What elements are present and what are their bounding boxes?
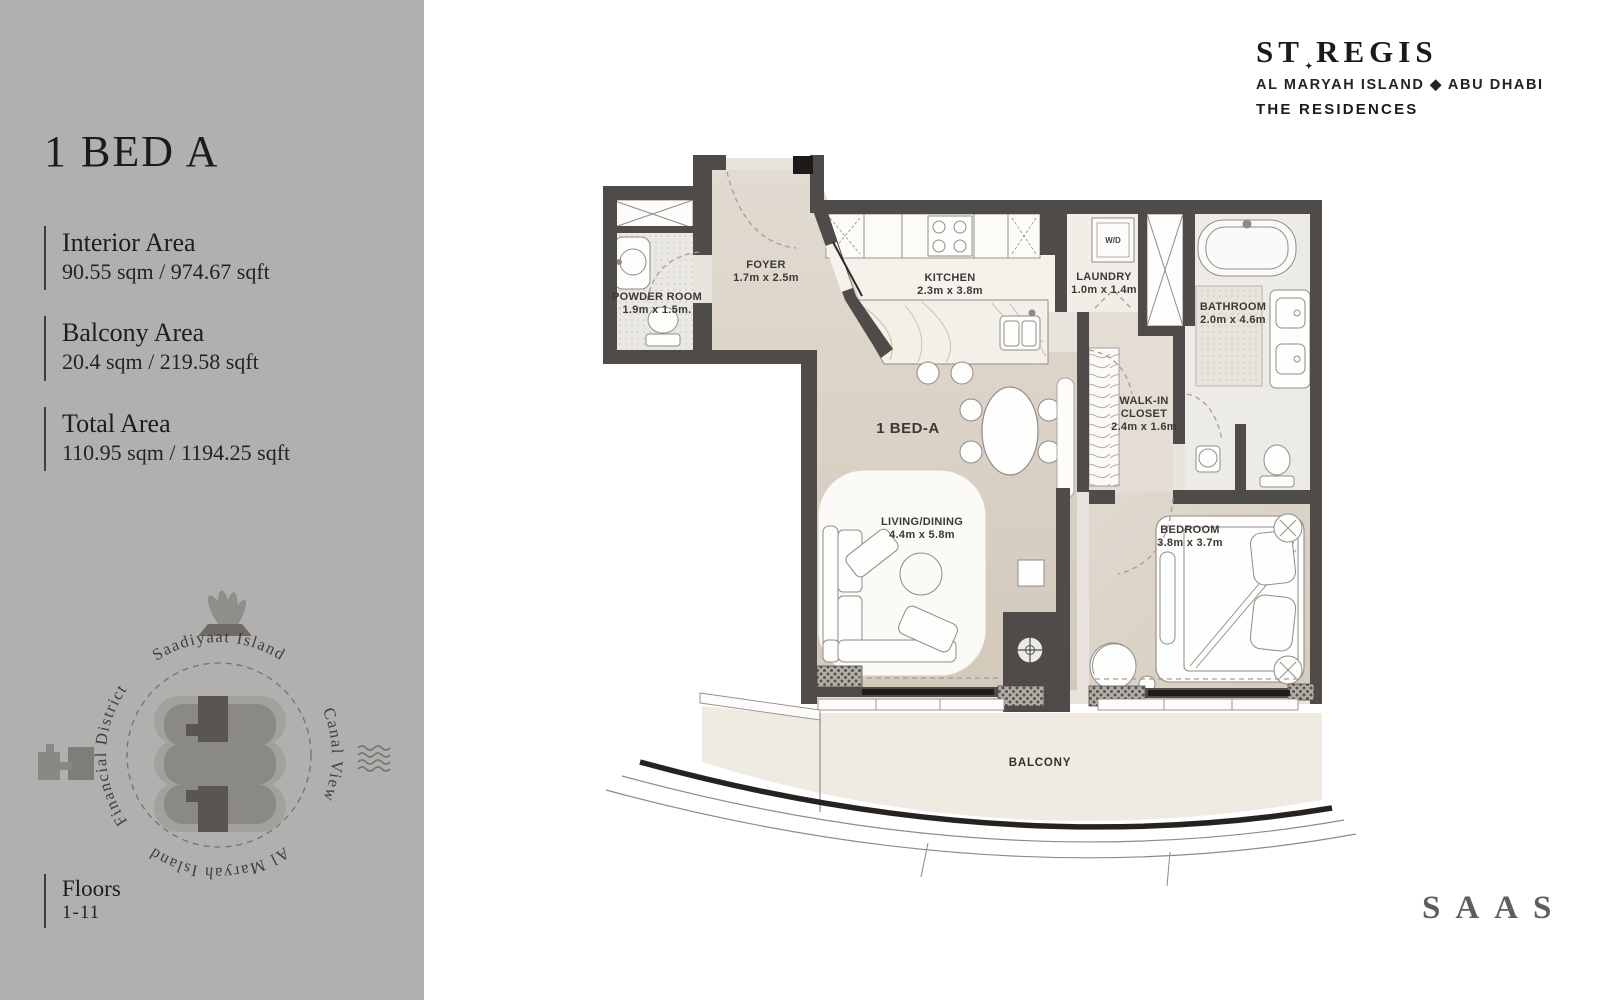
brochure-page: 1 BED A Interior Area 90.55 sqm / 974.67…: [0, 0, 1600, 1000]
developer-logo: SAAS: [1422, 890, 1566, 927]
foyer-label: FOYER: [746, 259, 785, 271]
counter-stool: [917, 362, 939, 384]
wc-sink-icon: [1196, 446, 1220, 472]
living-label: LIVING/DINING: [881, 516, 963, 528]
powder-sink-icon: [614, 237, 650, 289]
laundry-dims: 1.0m x 1.4m: [1071, 284, 1137, 296]
stove-icon: [928, 216, 972, 256]
bathroom-dims: 2.0m x 4.6m: [1200, 314, 1266, 326]
counter-stool: [951, 362, 973, 384]
coffee-table-icon: [900, 553, 942, 595]
shelf-box: [1018, 560, 1044, 586]
bathtub-icon: [1198, 220, 1296, 276]
bathroom-label: BATHROOM: [1200, 301, 1266, 313]
bathroom-vanity: [1270, 290, 1310, 388]
balcony-label: BALCONY: [1009, 757, 1071, 769]
kitchen-dims: 2.3m x 3.8m: [917, 285, 983, 297]
living-dims: 4.4m x 5.8m: [889, 529, 955, 541]
walkin-label-line2: CLOSET: [1121, 408, 1167, 420]
walkin-shelving: [1089, 348, 1119, 486]
wardrobe-icon: [1147, 214, 1183, 326]
powder-room-label: POWDER ROOM: [612, 291, 702, 303]
washer-dryer-label: W/D: [1105, 236, 1121, 245]
pocket-door: [1057, 378, 1074, 498]
walkin-dims: 2.4m x 1.6m: [1111, 421, 1177, 433]
bedroom-label: BEDROOM: [1160, 524, 1220, 536]
entry-door-leaf: [793, 156, 813, 174]
bedroom-dims: 3.8m x 3.7m: [1157, 537, 1223, 549]
unit-label: 1 BED-A: [876, 420, 940, 437]
laundry-label: LAUNDRY: [1076, 271, 1132, 283]
floor-plan: POWDER ROOM 1.9m x 1.5m. FOYER 1.7m x 2.…: [0, 0, 1600, 1000]
kitchen-label: KITCHEN: [925, 272, 976, 284]
walkin-label-line1: WALK-IN: [1119, 395, 1168, 407]
foyer-dims: 1.7m x 2.5m: [733, 272, 799, 284]
powder-room-dims: 1.9m x 1.5m.: [622, 304, 691, 316]
kitchen-sink-icon: [1000, 310, 1040, 350]
